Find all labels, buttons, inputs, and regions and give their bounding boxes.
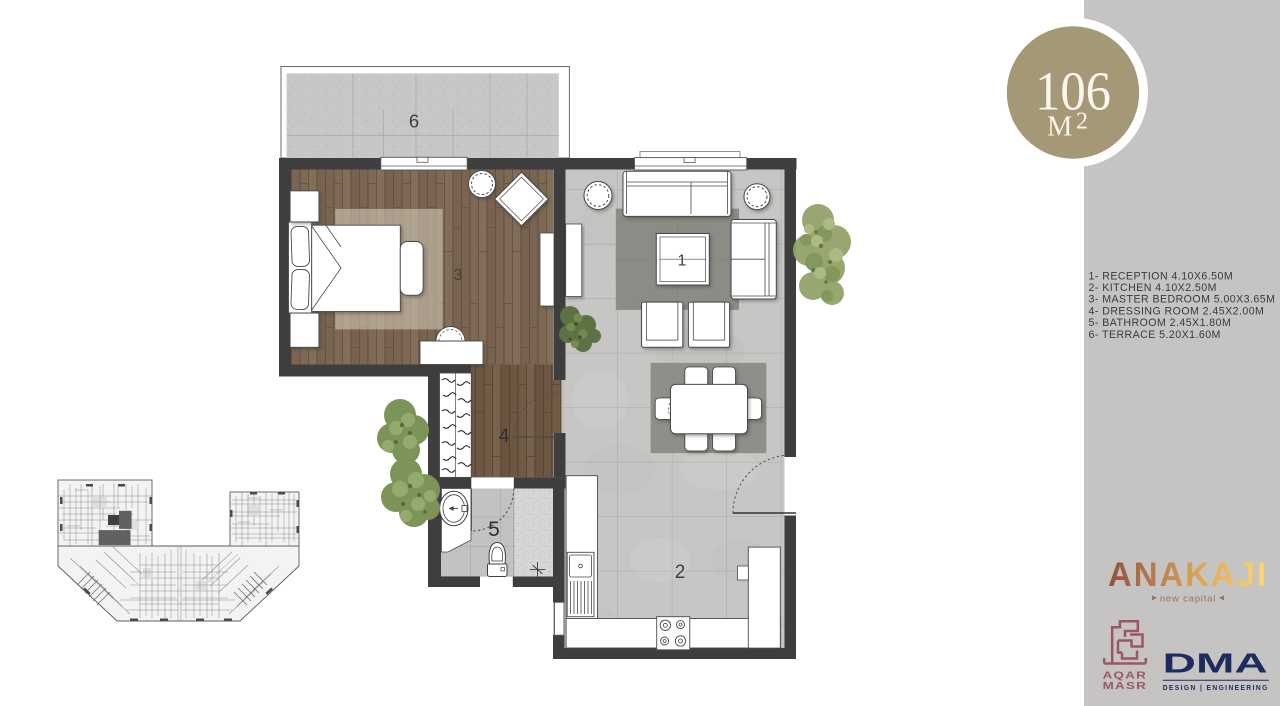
svg-text:4: 4 — [499, 426, 510, 447]
svg-text:6- TERRACE 5.20X1.60M: 6- TERRACE 5.20X1.60M — [1089, 329, 1221, 341]
svg-text:1: 1 — [678, 253, 687, 270]
svg-text:6: 6 — [409, 111, 419, 132]
svg-text:5: 5 — [488, 518, 500, 541]
svg-text:2: 2 — [1076, 109, 1088, 135]
svg-text:4- DRESSING ROOM 2.45X2.00M: 4- DRESSING ROOM 2.45X2.00M — [1089, 305, 1265, 317]
svg-text:DESIGN | ENGINEERING: DESIGN | ENGINEERING — [1163, 683, 1269, 692]
svg-text:3- MASTER BEDROOM 5.00X3.65M: 3- MASTER BEDROOM 5.00X3.65M — [1089, 294, 1276, 306]
svg-text:DMA: DMA — [1163, 648, 1268, 679]
svg-text:ANAKAJI: ANAKAJI — [1108, 556, 1268, 594]
svg-text:1- RECEPTION 4.10X6.50M: 1- RECEPTION 4.10X6.50M — [1089, 270, 1234, 282]
svg-text:new capital: new capital — [1160, 594, 1216, 605]
svg-text:MASR: MASR — [1103, 680, 1148, 692]
svg-text:2- KITCHEN 4.10X2.50M: 2- KITCHEN 4.10X2.50M — [1089, 282, 1217, 294]
svg-text:3: 3 — [454, 267, 463, 284]
svg-text:2: 2 — [675, 562, 686, 583]
svg-text:5- BATHROOM 2.45X1.80M: 5- BATHROOM 2.45X1.80M — [1089, 317, 1232, 329]
svg-text:M: M — [1047, 112, 1072, 143]
